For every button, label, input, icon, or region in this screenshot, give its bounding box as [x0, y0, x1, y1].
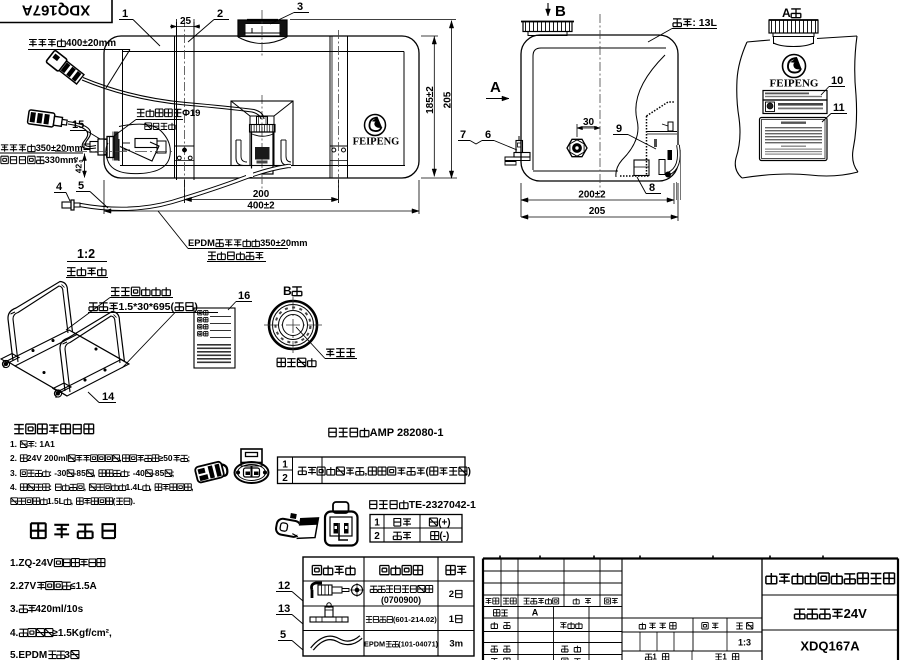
svg-text:1: 1	[722, 653, 727, 660]
svg-text:: -30: : -30	[49, 468, 67, 478]
svg-text:1.: 1.	[10, 439, 17, 449]
svg-text:EPDM: EPDM	[188, 238, 215, 248]
svg-text:B: B	[555, 3, 566, 20]
svg-text:(-): (-)	[439, 531, 449, 542]
svg-text:2.: 2.	[10, 453, 17, 463]
svg-text:XDQ167A: XDQ167A	[22, 2, 91, 19]
svg-text:205: 205	[443, 91, 454, 108]
svg-text:2: 2	[374, 531, 380, 542]
svg-text:1: 1	[122, 8, 128, 20]
svg-text:400±2: 400±2	[247, 201, 275, 212]
svg-text:;: ;	[187, 453, 190, 463]
svg-text:1.5*30*695(: 1.5*30*695(	[119, 301, 175, 313]
svg-text:1.4L: 1.4L	[126, 482, 143, 492]
svg-text:4: 4	[56, 181, 63, 193]
svg-text:3.: 3.	[10, 468, 17, 478]
svg-text:42: 42	[74, 164, 84, 174]
svg-text:350±20mm: 350±20mm	[260, 238, 308, 248]
svg-text:11: 11	[833, 102, 845, 114]
svg-text:1: 1	[374, 518, 380, 529]
svg-text:;: ;	[172, 468, 175, 478]
svg-text:16: 16	[238, 290, 250, 302]
svg-text:420ml/10s: 420ml/10s	[35, 604, 83, 615]
svg-text:25: 25	[180, 16, 192, 27]
svg-text:(101-04071): (101-04071)	[398, 640, 438, 649]
svg-text:1.ZQ-24V: 1.ZQ-24V	[10, 558, 54, 569]
svg-text:9: 9	[616, 123, 622, 135]
svg-text:3.: 3.	[10, 604, 19, 615]
svg-text:200: 200	[253, 189, 270, 200]
svg-text:(601-214.02): (601-214.02)	[393, 615, 437, 624]
svg-text:1.5L: 1.5L	[47, 496, 64, 506]
svg-text:1: 1	[652, 653, 657, 660]
svg-text:3m: 3m	[449, 639, 463, 650]
svg-text:6: 6	[485, 129, 491, 141]
svg-text:,: ,	[149, 482, 151, 492]
svg-text:5.EPDM: 5.EPDM	[10, 650, 47, 660]
svg-text:≥1.5Kgf/cm²,: ≥1.5Kgf/cm²,	[52, 628, 112, 639]
svg-text:30: 30	[583, 117, 595, 128]
svg-text:(0700900): (0700900)	[381, 595, 421, 605]
svg-text:Φ19: Φ19	[182, 108, 200, 119]
svg-text:4.: 4.	[10, 628, 19, 639]
svg-text:2: 2	[282, 473, 288, 484]
svg-text:1: 1	[282, 460, 288, 471]
svg-text:2.27V: 2.27V	[10, 581, 36, 592]
svg-text:A: A	[782, 6, 791, 20]
svg-text:,: ,	[365, 467, 368, 478]
svg-text:205: 205	[589, 206, 606, 217]
svg-text:≤1.5A: ≤1.5A	[70, 581, 97, 592]
svg-text:2: 2	[217, 8, 223, 20]
svg-text:2: 2	[449, 589, 454, 600]
svg-text:8: 8	[649, 182, 655, 194]
svg-text:13: 13	[278, 603, 290, 615]
svg-text:3: 3	[297, 1, 303, 13]
svg-text:).: ).	[130, 496, 135, 506]
svg-text:24V: 24V	[844, 606, 867, 621]
svg-text:FEIPENG: FEIPENG	[353, 137, 400, 148]
svg-text:(: (	[113, 496, 116, 506]
svg-text:,: ,	[119, 453, 121, 463]
svg-text:10: 10	[831, 75, 843, 87]
svg-text:(+): (+)	[438, 518, 451, 529]
svg-text:4.: 4.	[10, 482, 17, 492]
svg-text:24V 200ml: 24V 200ml	[27, 453, 68, 463]
svg-text:1: 1	[449, 614, 455, 625]
svg-text:5: 5	[280, 629, 286, 641]
svg-text:1:3: 1:3	[738, 638, 751, 648]
svg-text:1:2: 1:2	[77, 247, 95, 261]
svg-text:,: ,	[84, 482, 86, 492]
svg-text:-85: -85	[74, 468, 86, 478]
svg-text:5: 5	[78, 180, 84, 192]
svg-text:-85: -85	[152, 468, 164, 478]
svg-text:AMP 282080-1: AMP 282080-1	[370, 427, 444, 439]
svg-text:185±2: 185±2	[425, 86, 436, 114]
svg-text:3: 3	[64, 650, 70, 660]
svg-text:,: ,	[71, 496, 73, 506]
svg-text:FEIPENG: FEIPENG	[770, 78, 819, 90]
svg-text::: :	[49, 482, 52, 492]
svg-text:330mm: 330mm	[45, 155, 77, 165]
svg-text:15: 15	[72, 119, 84, 131]
svg-text:,: ,	[191, 482, 193, 492]
svg-text:400±20mm: 400±20mm	[66, 38, 116, 49]
svg-text:XDQ167A: XDQ167A	[800, 639, 860, 654]
svg-text:B: B	[283, 284, 292, 298]
svg-text:12: 12	[278, 580, 290, 592]
svg-text:A: A	[532, 608, 539, 618]
svg-text:): )	[468, 467, 471, 478]
svg-text:200±2: 200±2	[578, 190, 606, 201]
svg-text:EPDM: EPDM	[364, 640, 385, 649]
svg-text:: -40: : -40	[128, 468, 146, 478]
svg-text:TE-2327042-1: TE-2327042-1	[409, 499, 476, 511]
svg-text:A: A	[490, 79, 501, 96]
svg-text:: 13L: : 13L	[692, 17, 717, 29]
svg-text:: 1A1: : 1A1	[34, 439, 55, 449]
svg-text:14: 14	[102, 391, 115, 403]
svg-text:,: ,	[93, 468, 95, 478]
svg-text:350±20mm: 350±20mm	[36, 143, 83, 153]
svg-text:7: 7	[460, 129, 466, 141]
svg-text:0: 0	[79, 160, 85, 163]
svg-text:≥50: ≥50	[159, 453, 173, 463]
